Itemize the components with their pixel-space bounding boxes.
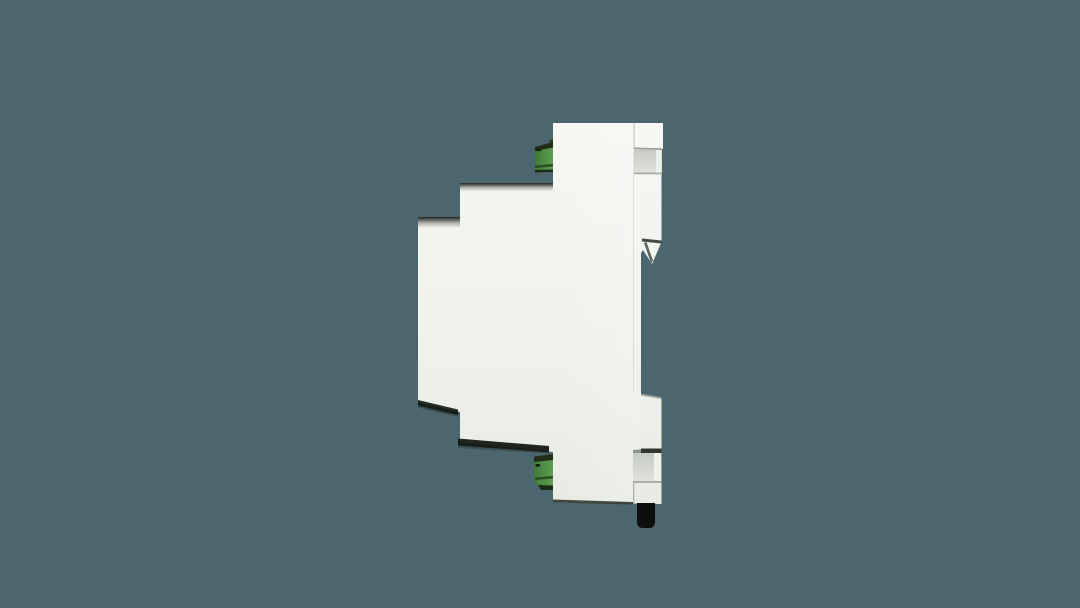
- top-block-seam: [634, 123, 635, 149]
- body-highlight: [555, 123, 639, 502]
- left-step-shadow: [418, 217, 460, 228]
- product-photo: [0, 0, 1080, 608]
- clip-carrier-seam: [633, 483, 634, 504]
- terminal-top-green-face: [535, 148, 553, 172]
- terminal-top-bottom-edge: [535, 170, 553, 173]
- din-notch-top-floor-line: [634, 173, 662, 175]
- terminal-bottom-mark: [536, 464, 541, 467]
- back-seam: [633, 152, 634, 392]
- clip-carrier-block: [633, 483, 662, 504]
- terminal-top-mark: [537, 149, 542, 152]
- din-notch-top-wall: [656, 150, 662, 174]
- mid-step-shadow: [460, 183, 553, 192]
- din-notch-bottom-wall: [654, 453, 661, 482]
- din-notch-bottom-floor-line: [633, 481, 662, 483]
- din-notch-bottom-dark-line: [641, 449, 662, 454]
- release-clip-tab: [637, 503, 655, 528]
- din-notch-bottom-light-line: [633, 450, 641, 454]
